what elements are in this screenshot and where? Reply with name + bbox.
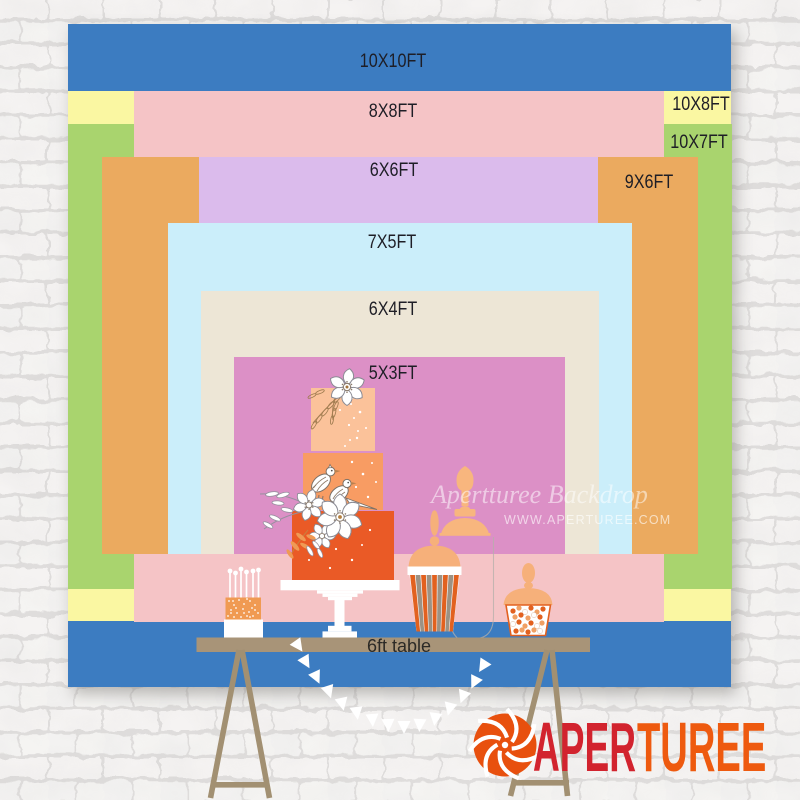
svg-text:APER: APER (533, 707, 636, 786)
svg-text:6ft table: 6ft table (367, 636, 431, 656)
svg-text:TUREE: TUREE (637, 708, 766, 786)
